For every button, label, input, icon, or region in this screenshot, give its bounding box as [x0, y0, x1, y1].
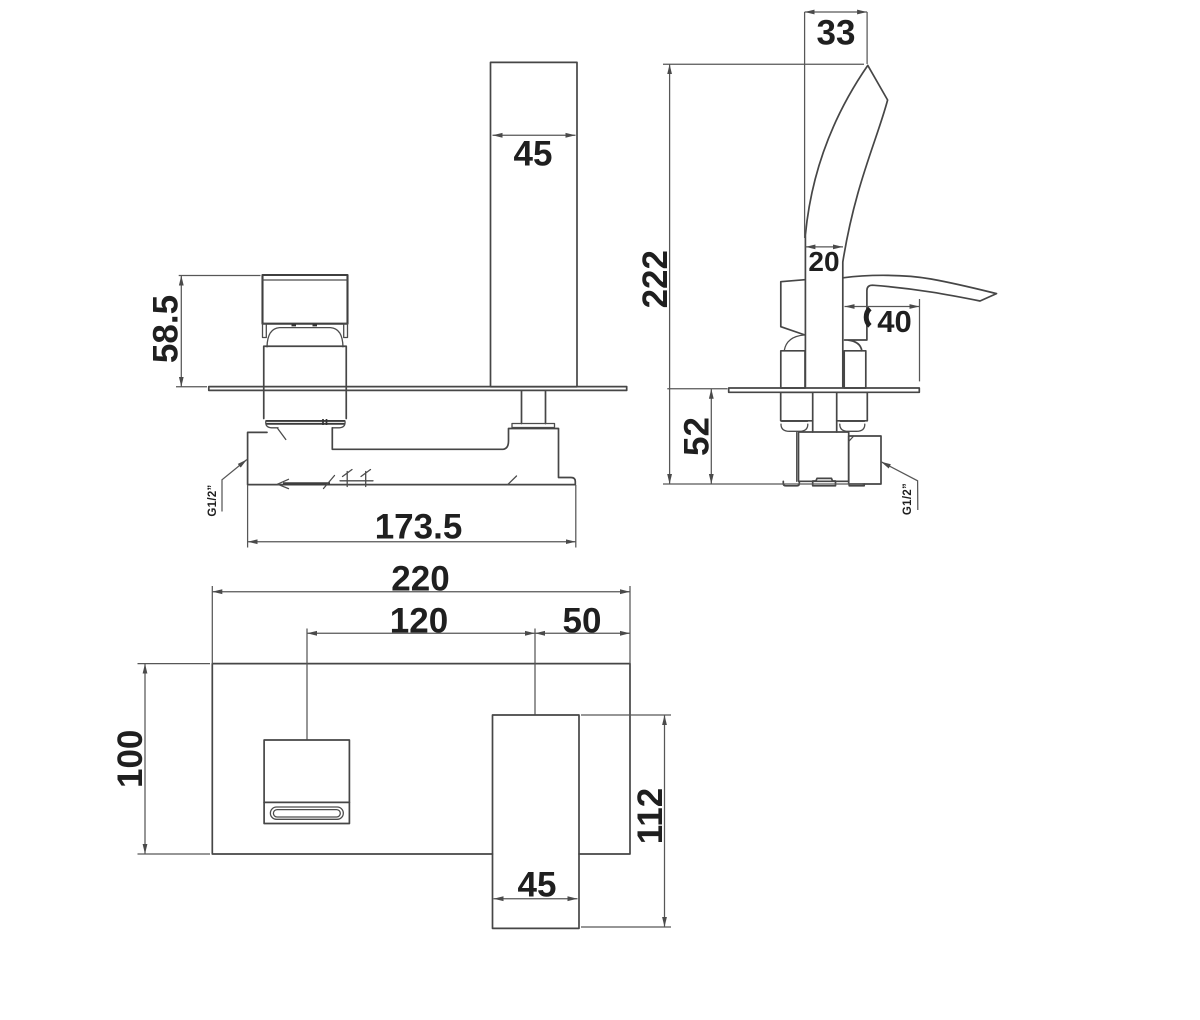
svg-text:45: 45	[518, 866, 557, 905]
svg-text:112: 112	[631, 788, 670, 844]
svg-text:100: 100	[111, 730, 150, 788]
svg-text:20: 20	[808, 246, 839, 277]
svg-text:220: 220	[391, 559, 449, 598]
svg-text:33: 33	[817, 14, 856, 53]
svg-text:222: 222	[636, 250, 675, 308]
svg-text:50: 50	[563, 601, 602, 640]
svg-text:G1/2”: G1/2”	[902, 483, 914, 515]
svg-text:45: 45	[514, 135, 553, 174]
svg-text:40: 40	[877, 304, 911, 339]
svg-text:G1/2”: G1/2”	[207, 484, 219, 516]
svg-text:120: 120	[390, 601, 448, 640]
svg-text:58.5: 58.5	[147, 295, 186, 363]
svg-text:173.5: 173.5	[375, 507, 463, 546]
svg-text:52: 52	[678, 417, 717, 456]
